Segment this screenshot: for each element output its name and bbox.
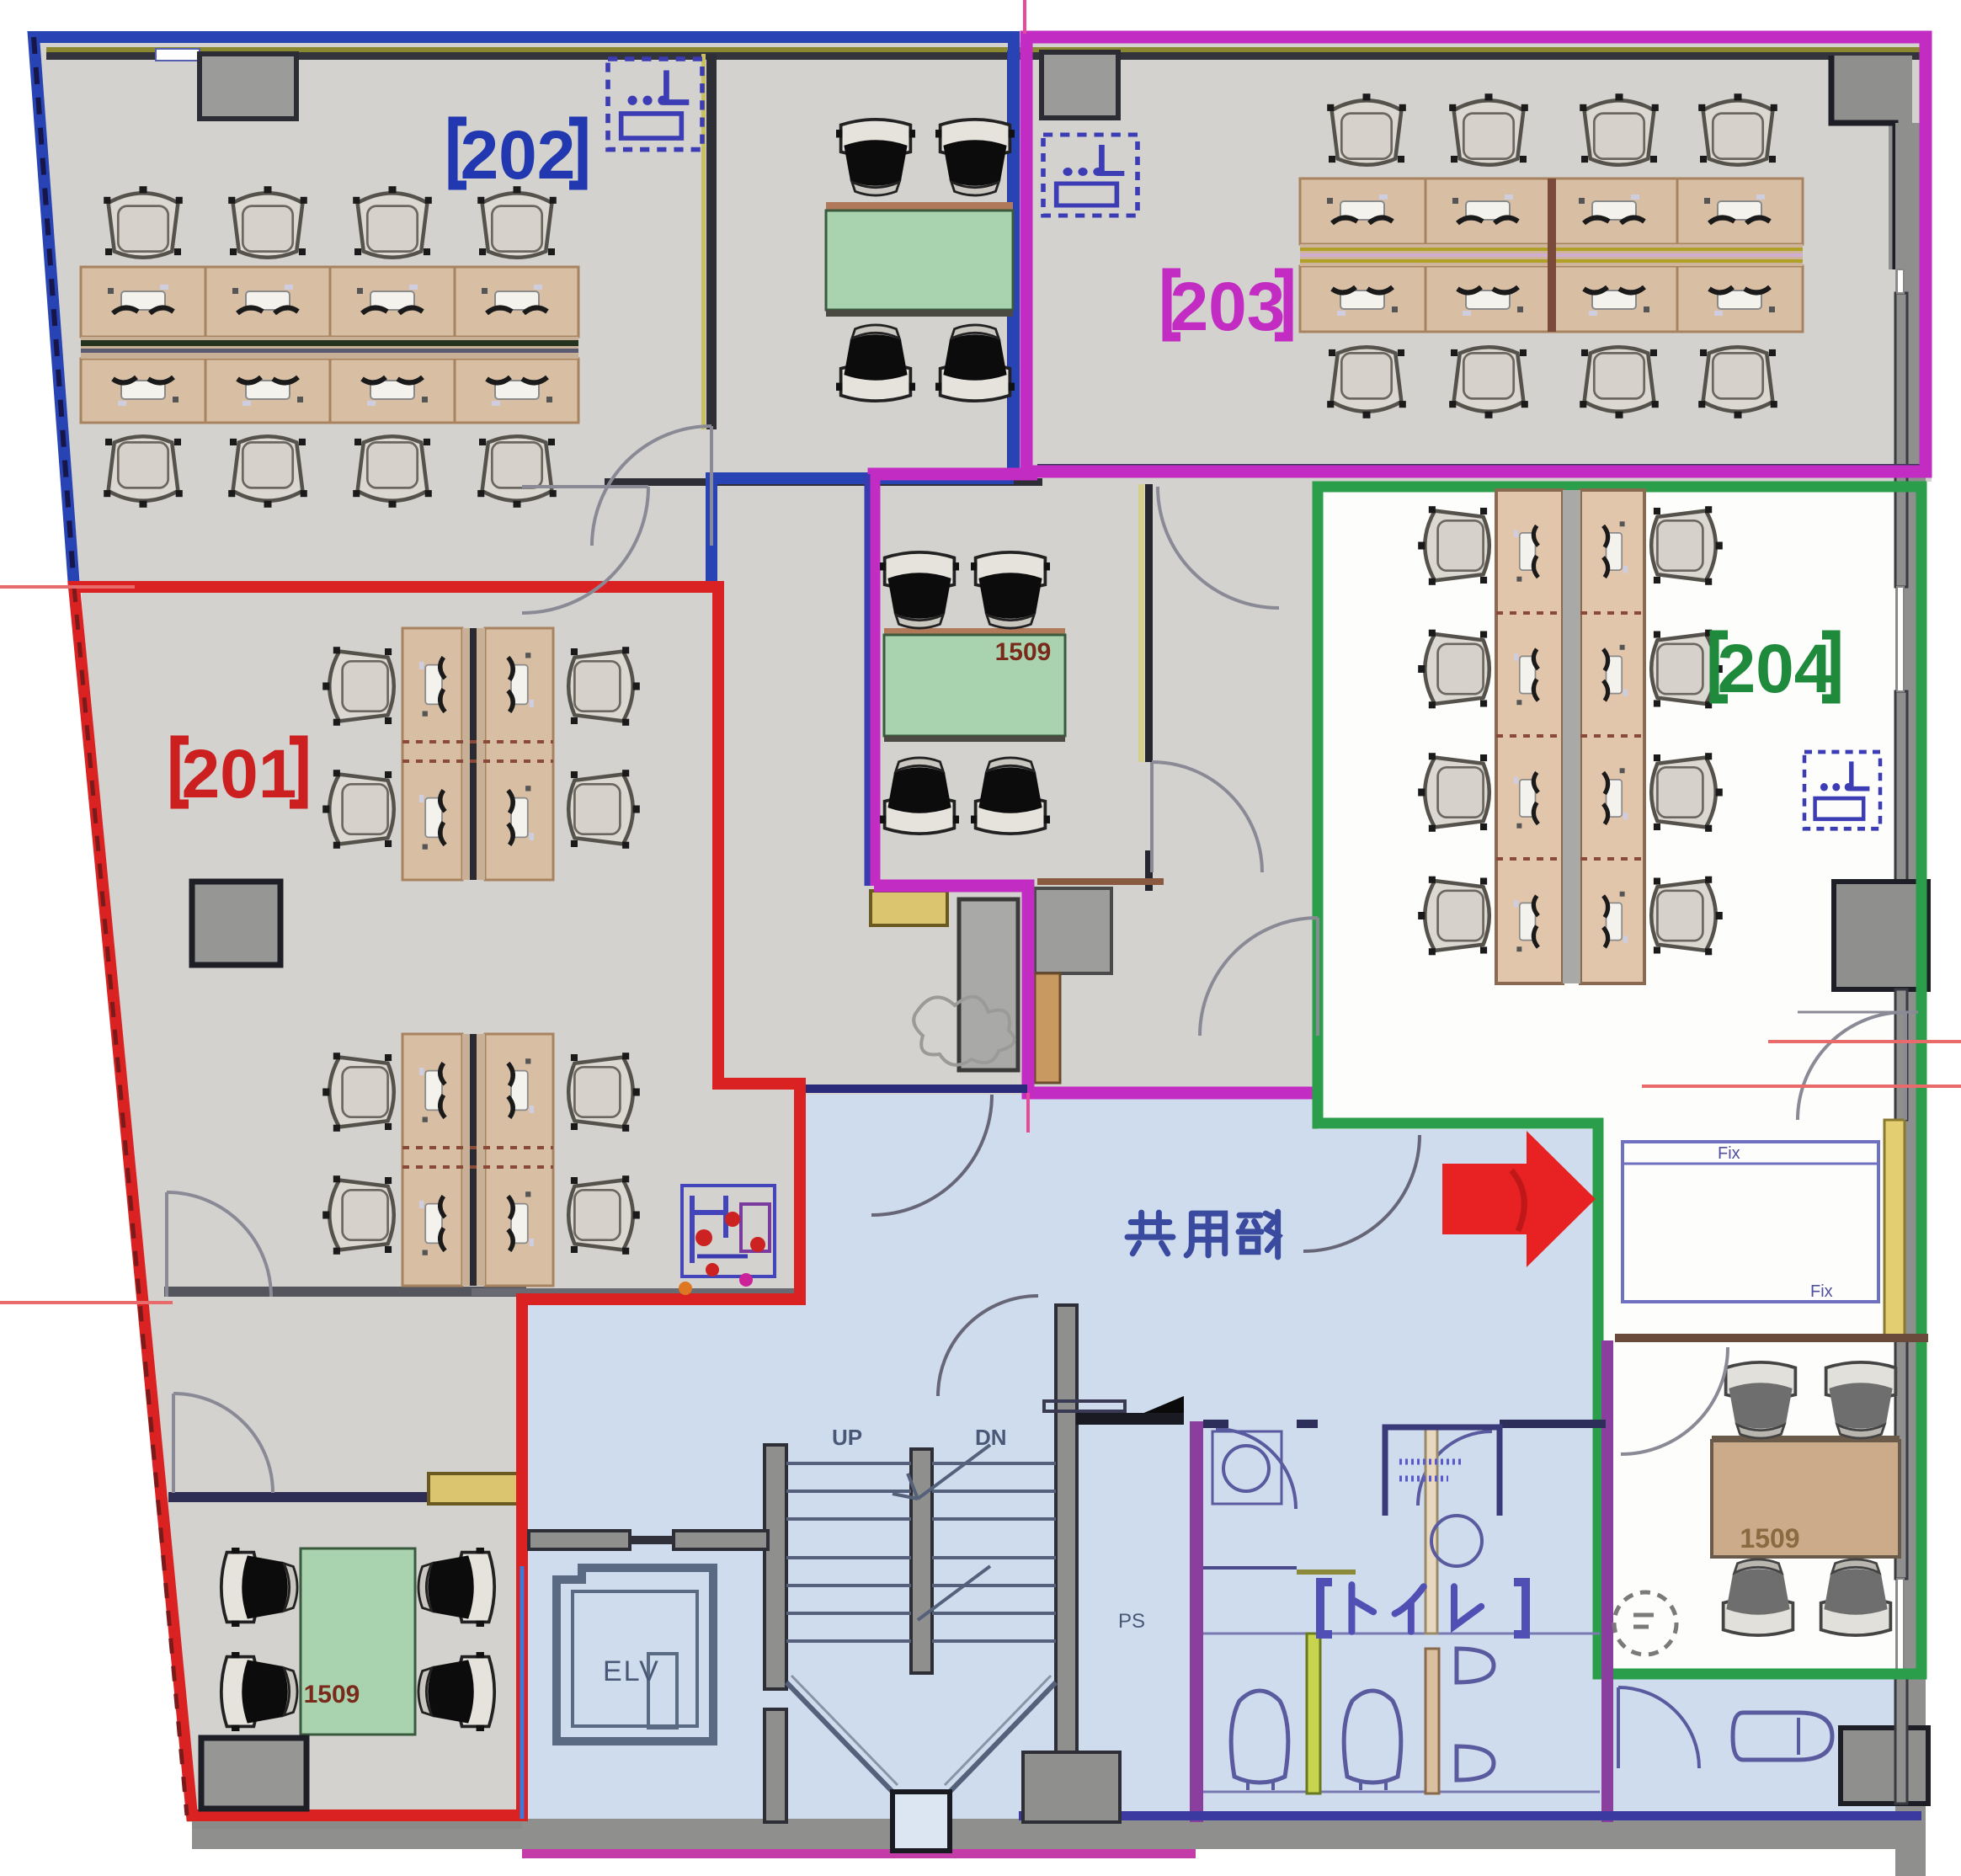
svg-text:UP: UP	[832, 1425, 862, 1450]
svg-text:202: 202	[461, 117, 576, 194]
svg-text:201: 201	[182, 736, 297, 813]
svg-text:204: 204	[1718, 631, 1833, 707]
svg-text:PS: PS	[1118, 1610, 1145, 1633]
svg-text:Fix: Fix	[1810, 1282, 1833, 1301]
svg-text:1509: 1509	[1740, 1523, 1799, 1554]
svg-text:1509: 1509	[995, 638, 1052, 666]
svg-text:Fix: Fix	[1718, 1144, 1740, 1163]
svg-text:203: 203	[1170, 269, 1286, 345]
svg-text:1509: 1509	[304, 1681, 360, 1708]
svg-text:DN: DN	[975, 1425, 1007, 1450]
svg-text:ELV: ELV	[603, 1655, 660, 1687]
